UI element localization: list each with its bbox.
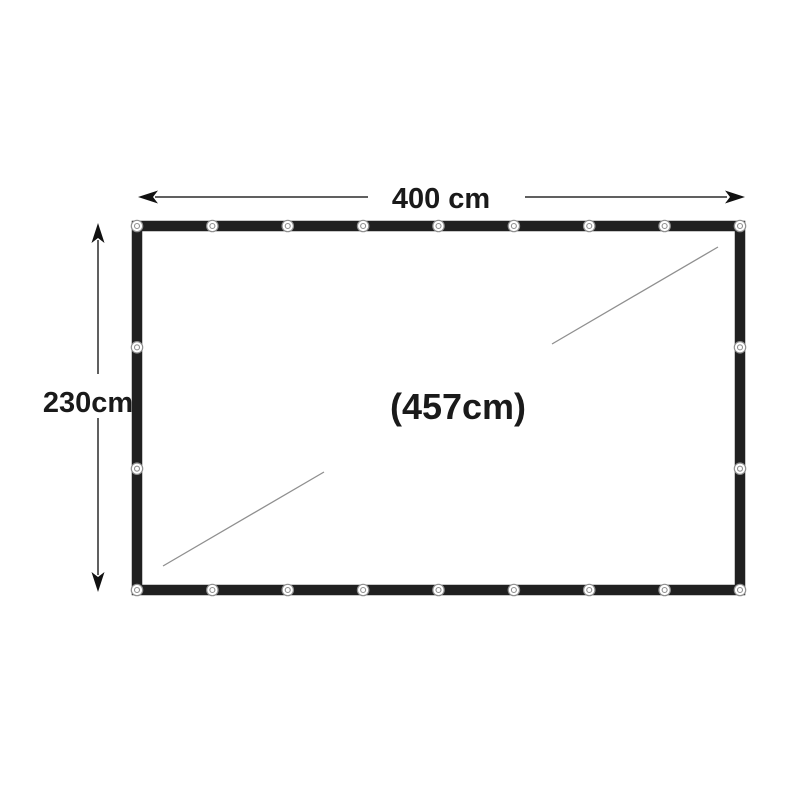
grommet	[131, 220, 142, 231]
arrow-right-icon	[725, 191, 745, 204]
grommet	[508, 220, 519, 231]
grommet	[659, 584, 670, 595]
grommet	[734, 584, 745, 595]
grommet	[433, 584, 444, 595]
grommet	[508, 584, 519, 595]
grommet	[734, 220, 745, 231]
diagram-svg: 400 cm 230cm (457cm)	[0, 0, 800, 800]
width-dimension: 400 cm	[138, 183, 745, 215]
product-diagram: 400 cm 230cm (457cm)	[0, 0, 800, 800]
grommet	[131, 584, 142, 595]
grommet	[734, 342, 745, 353]
grommet	[131, 342, 142, 353]
grommet	[357, 584, 368, 595]
height-dimension-label: 230cm	[43, 387, 133, 419]
grommet	[207, 220, 218, 231]
grommet	[433, 220, 444, 231]
grommet	[207, 584, 218, 595]
width-dimension-label: 400 cm	[392, 183, 490, 215]
grommet	[131, 463, 142, 474]
grommet	[282, 584, 293, 595]
grommet	[734, 463, 745, 474]
diagonal-dimension-label: (457cm)	[390, 386, 526, 427]
grommet	[584, 220, 595, 231]
grommet	[357, 220, 368, 231]
height-dimension: 230cm	[43, 223, 133, 592]
grommet	[282, 220, 293, 231]
grommet	[584, 584, 595, 595]
grommet	[659, 220, 670, 231]
